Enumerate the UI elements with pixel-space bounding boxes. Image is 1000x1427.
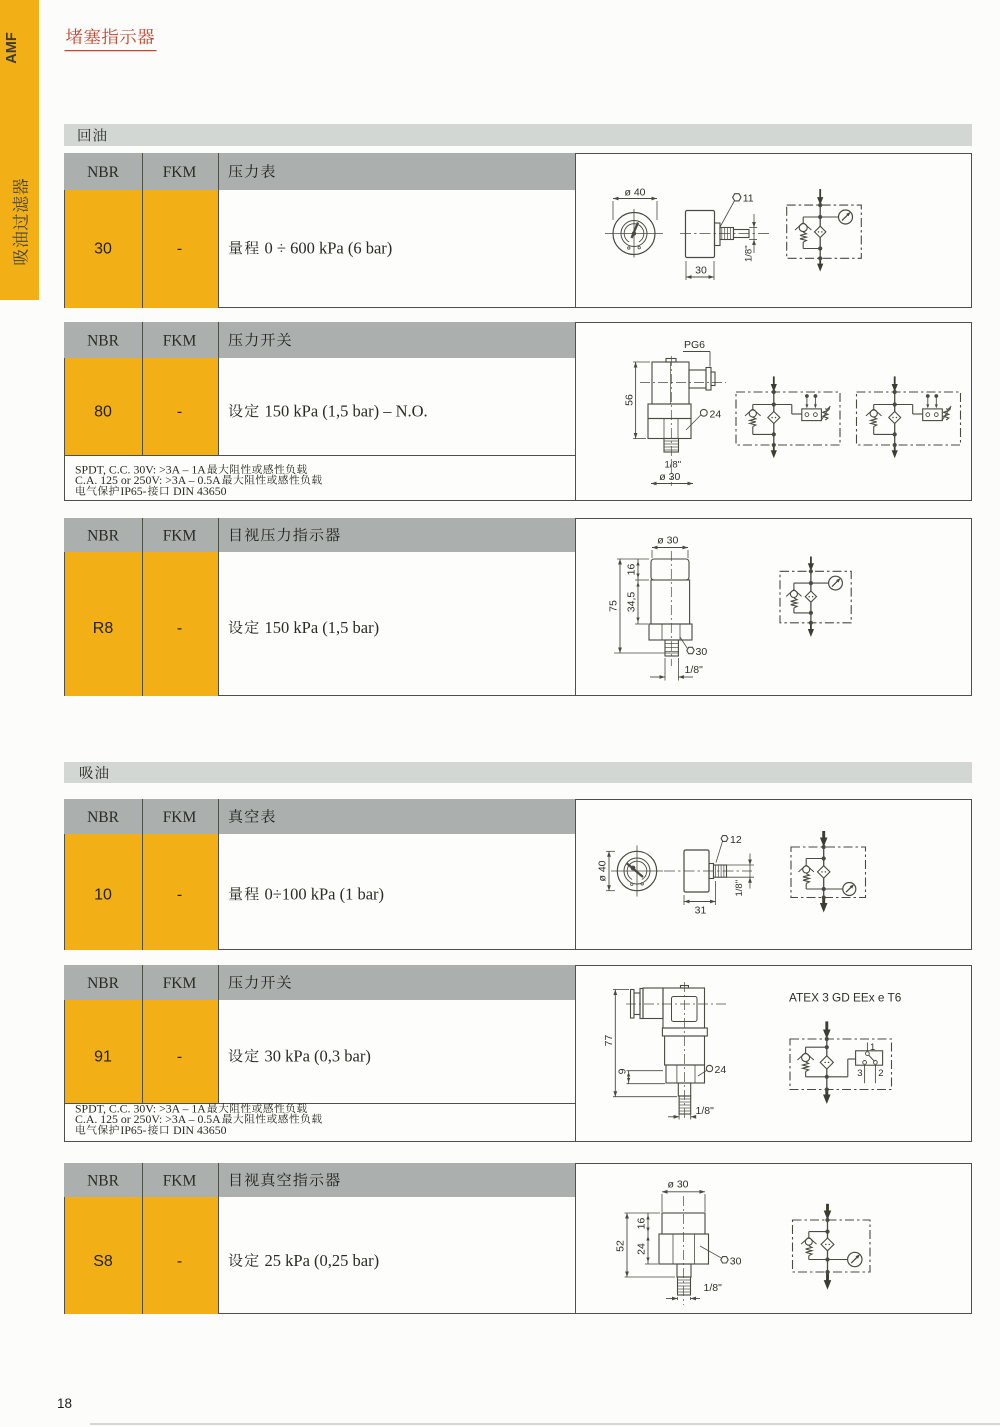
svg-text:11: 11 — [743, 193, 754, 205]
svg-text:75: 75 — [608, 600, 620, 612]
svg-text:30: 30 — [695, 265, 707, 277]
svg-text:ø 30: ø 30 — [659, 471, 680, 483]
svg-text:ø 40: ø 40 — [624, 187, 645, 199]
svg-text:PG6: PG6 — [684, 339, 705, 351]
svg-text:ø 40: ø 40 — [597, 860, 609, 881]
svg-text:77: 77 — [603, 1035, 615, 1047]
svg-text:30: 30 — [696, 646, 708, 658]
svg-text:30 kPa (0,3 bar): 30 kPa (0,3 bar) — [260, 1047, 370, 1066]
svg-text:25 kPa (0,25 bar): 25 kPa (0,25 bar) — [260, 1251, 379, 1270]
svg-text:1/8": 1/8" — [685, 664, 704, 676]
svg-text:56: 56 — [623, 394, 635, 406]
svg-text:150 kPa (1,5 bar) – N.O.: 150 kPa (1,5 bar) – N.O. — [260, 402, 427, 421]
svg-text:30: 30 — [94, 241, 112, 258]
svg-text:IP65-: IP65- — [120, 1123, 146, 1137]
svg-text:52: 52 — [615, 1240, 627, 1252]
svg-text:FKM: FKM — [163, 528, 197, 545]
svg-text:FKM: FKM — [163, 809, 197, 826]
svg-text:-: - — [177, 1049, 182, 1066]
svg-text:DIN 43650: DIN 43650 — [173, 1123, 227, 1137]
svg-text:ø 30: ø 30 — [657, 535, 678, 547]
svg-text:-: - — [177, 620, 182, 637]
svg-text:16: 16 — [636, 1218, 648, 1230]
svg-text:18: 18 — [57, 1396, 72, 1411]
svg-text:0 ÷ 600 kPa (6 bar): 0 ÷ 600 kPa (6 bar) — [260, 239, 392, 258]
svg-text:3: 3 — [857, 1068, 862, 1079]
svg-text:-: - — [177, 1253, 182, 1270]
svg-text:1/8": 1/8" — [665, 460, 682, 471]
svg-text:NBR: NBR — [87, 1173, 120, 1190]
svg-text:AMF: AMF — [4, 32, 20, 64]
svg-text:12: 12 — [730, 834, 742, 846]
svg-text:NBR: NBR — [87, 809, 120, 826]
svg-text:-: - — [177, 241, 182, 258]
svg-text:24: 24 — [715, 1064, 727, 1076]
svg-text:S8: S8 — [93, 1253, 113, 1270]
svg-text:-: - — [177, 887, 182, 904]
svg-text:1/8": 1/8" — [704, 1282, 723, 1294]
svg-text:-: - — [177, 404, 182, 421]
svg-text:FKM: FKM — [163, 333, 197, 350]
svg-text:R8: R8 — [93, 620, 114, 637]
svg-text:ø 30: ø 30 — [667, 1179, 688, 1191]
svg-text:NBR: NBR — [87, 528, 120, 545]
svg-text:ATEX 3 GD EEx e T6: ATEX 3 GD EEx e T6 — [789, 991, 902, 1005]
svg-text:9: 9 — [616, 1068, 628, 1074]
svg-text:0÷100 kPa (1 bar): 0÷100 kPa (1 bar) — [260, 885, 384, 904]
svg-text:FKM: FKM — [163, 1173, 197, 1190]
svg-text:1/8": 1/8" — [734, 880, 745, 897]
svg-text:FKM: FKM — [163, 975, 197, 992]
svg-text:30: 30 — [730, 1255, 742, 1267]
svg-text:150 kPa (1,5 bar): 150 kPa (1,5 bar) — [260, 618, 379, 637]
svg-text:IP65-: IP65- — [120, 484, 146, 498]
svg-text:1: 1 — [870, 1042, 875, 1053]
svg-text:2: 2 — [878, 1068, 883, 1079]
svg-text:80: 80 — [94, 404, 112, 421]
svg-text:DIN 43650: DIN 43650 — [173, 484, 227, 498]
svg-text:NBR: NBR — [87, 975, 120, 992]
svg-text:NBR: NBR — [87, 164, 120, 181]
svg-text:16: 16 — [626, 564, 638, 576]
svg-text:24: 24 — [710, 408, 722, 420]
svg-text:1/8": 1/8" — [696, 1105, 715, 1117]
svg-text:1/8": 1/8" — [744, 245, 755, 262]
svg-text:FKM: FKM — [163, 164, 197, 181]
svg-text:NBR: NBR — [87, 333, 120, 350]
svg-text:31: 31 — [695, 905, 707, 917]
svg-text:24: 24 — [636, 1243, 648, 1255]
svg-text:91: 91 — [94, 1049, 112, 1066]
svg-text:10: 10 — [94, 887, 112, 904]
svg-text:34,5: 34,5 — [626, 592, 638, 613]
